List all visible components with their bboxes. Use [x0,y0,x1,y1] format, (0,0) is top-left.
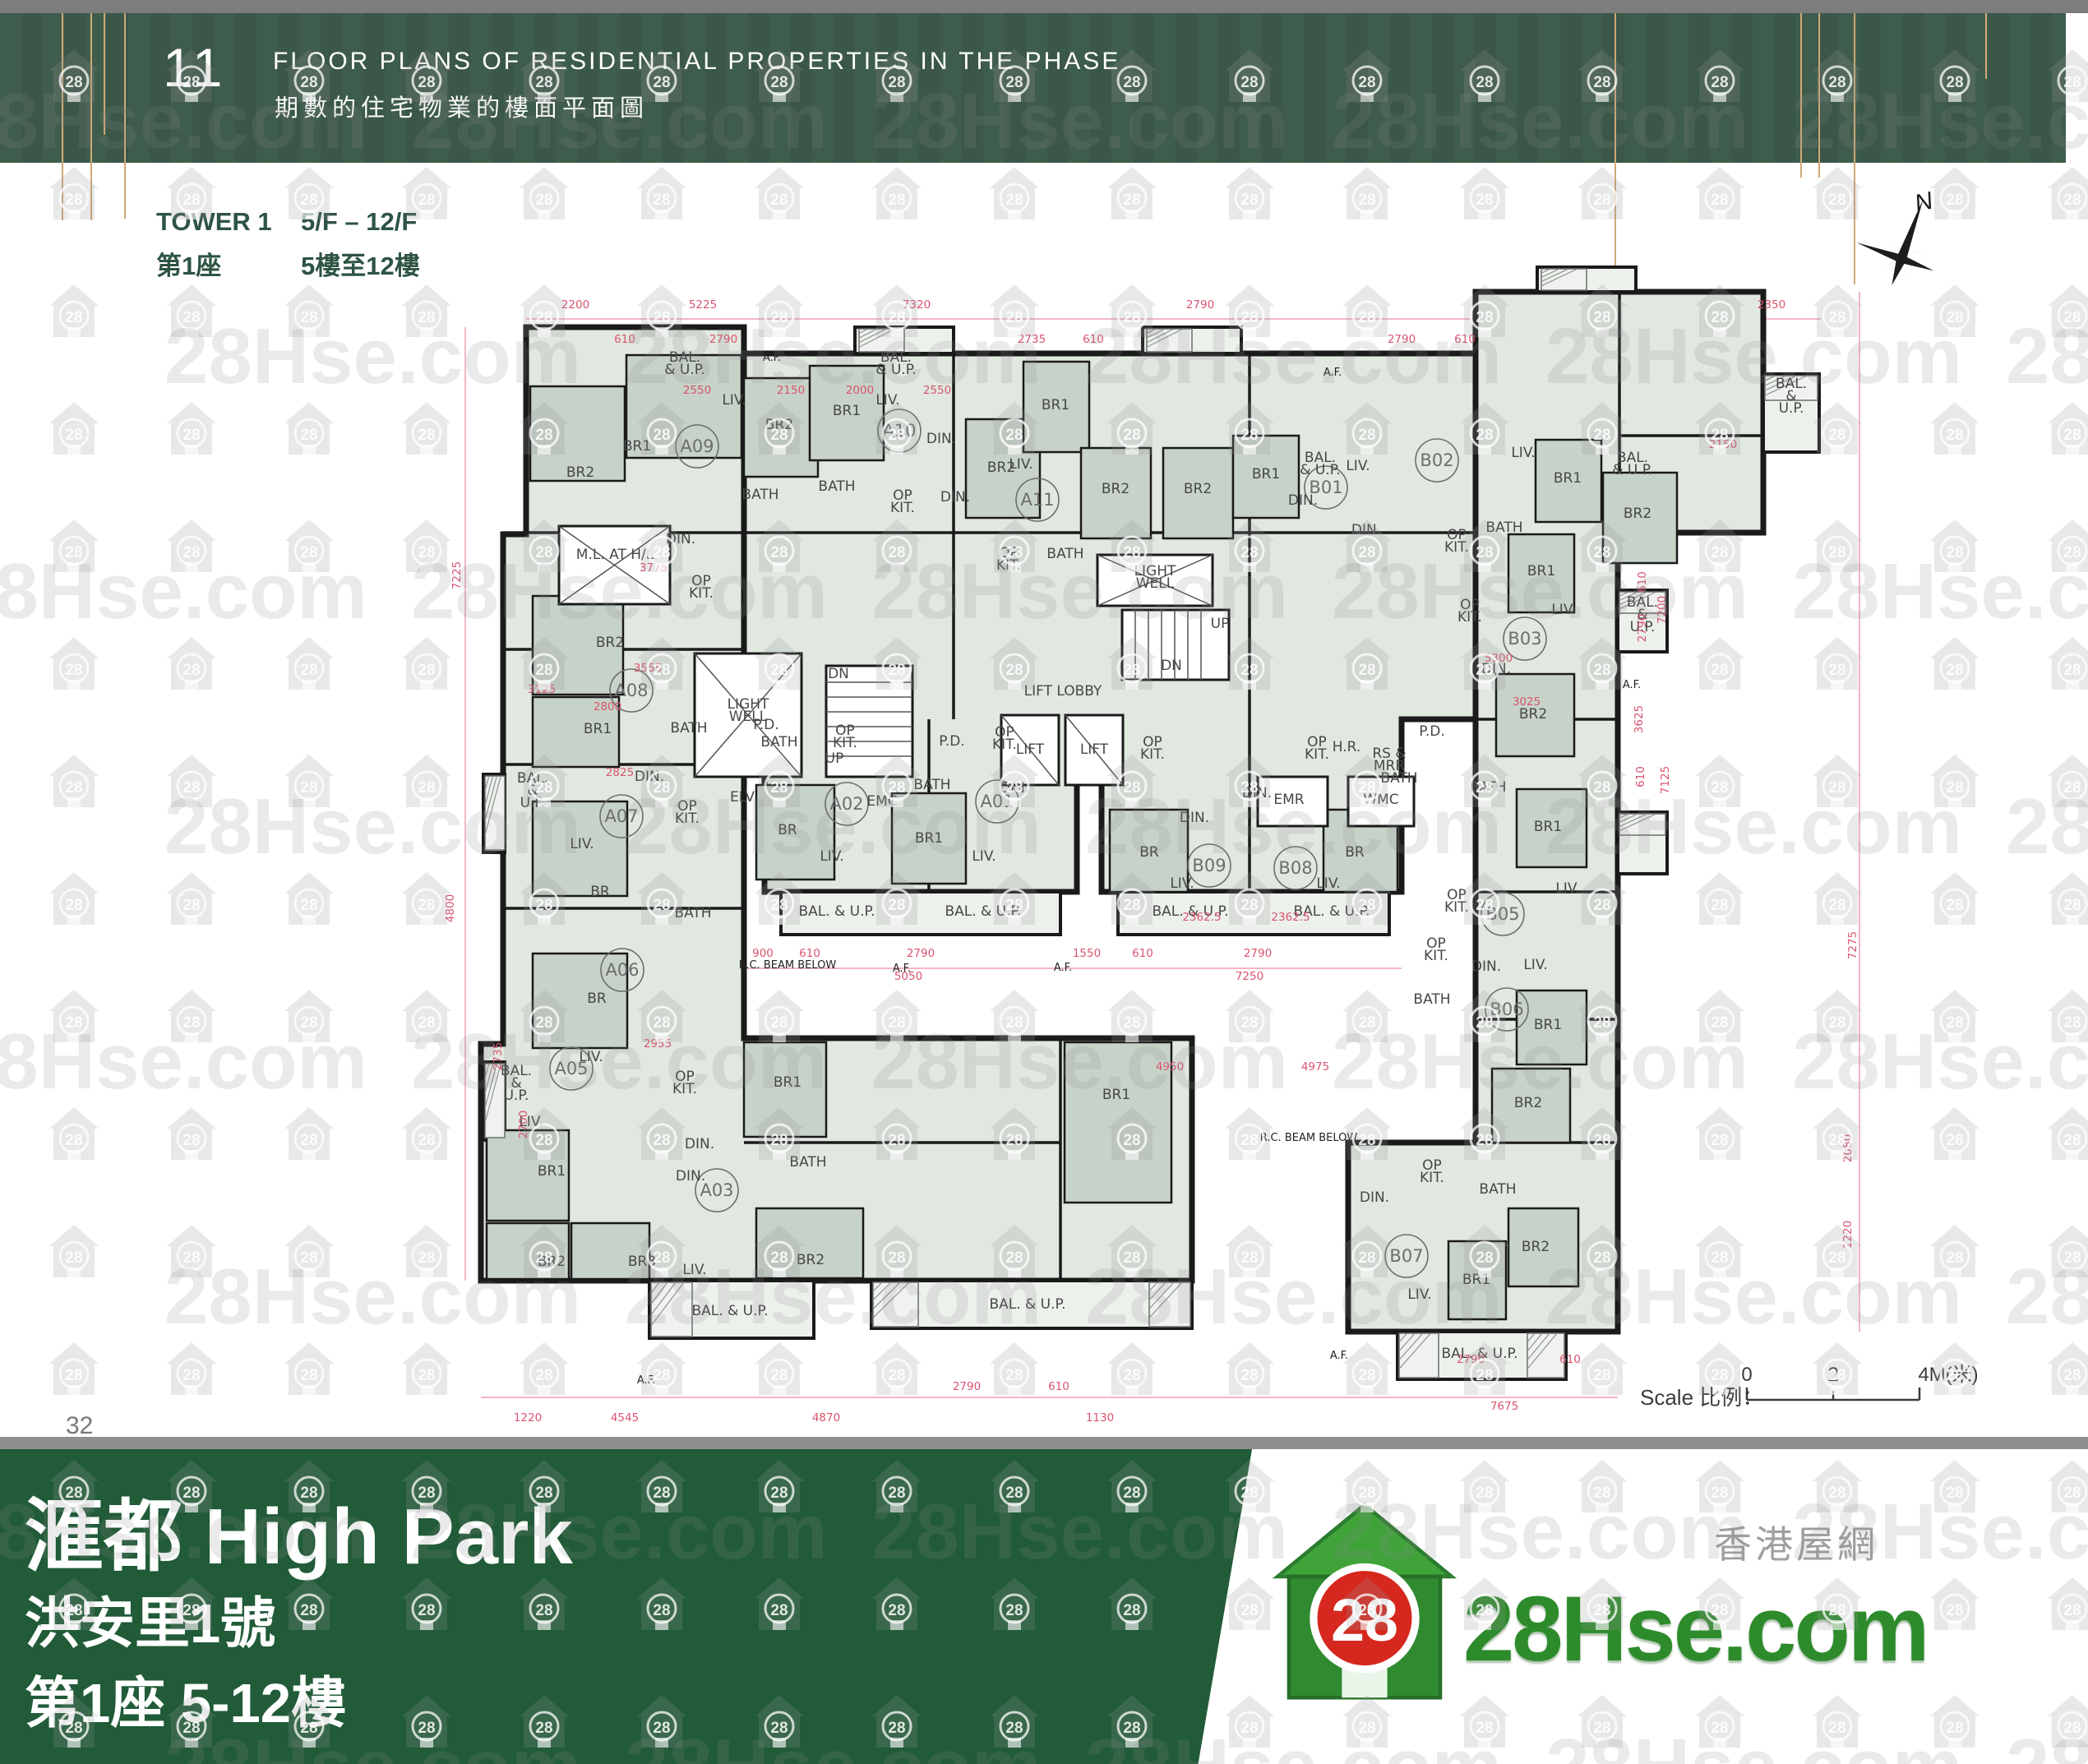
room-label: BR2 [1102,481,1129,497]
unit-label-B06: B06 [1490,1000,1523,1019]
room-label: BATH [789,1154,826,1171]
dimension-label: 610 [1454,333,1476,346]
dimension-label: 2700 [517,1111,530,1138]
room-label: BR2 [538,1254,566,1270]
scale-tick-0: 0 [1741,1364,1752,1386]
logo-house-icon: 28 [1270,1500,1459,1710]
room-label: BATH [670,720,707,737]
room-label: BR [587,991,607,1007]
room-label: ELV [730,789,755,806]
dimension-label: 2735 [492,1042,505,1070]
room-label: OPKIT. [1140,734,1165,763]
room-label: BR [590,884,610,900]
dimension-label: 4950 [1156,1060,1184,1074]
room-label: LIV. [722,392,746,409]
dimension-label: 3775 [640,561,668,575]
unit-label-A02: A02 [829,794,863,814]
room-label: OPKIT. [1424,935,1448,964]
dimension-label: 2800 [594,700,621,713]
annotation: R.C. BEAM BELOW [1260,1132,1358,1144]
dimension-label: 2790 [953,1380,981,1393]
room-label: EMR [1273,792,1304,808]
room-label: BR1 [833,403,861,419]
site-logo[interactable]: 28 香港屋網 28Hse.com [1270,1500,2010,1739]
room-label: OPKIT. [1444,887,1469,916]
room-label: BR [778,822,797,838]
room-label: LIV. [1555,880,1579,897]
dimension-label: 610 [1636,571,1649,593]
unit-label-B09: B09 [1192,856,1226,875]
dimension-label: 610 [1559,1353,1581,1366]
room-label: LIV. [1407,1286,1431,1303]
room-label: UP [825,750,844,767]
dimension-label: 2200 [561,298,589,312]
room-label: OPKIT. [675,798,700,827]
room-label: UP [1211,616,1230,632]
room-label: BAL.& U.P. [1612,450,1653,478]
dimension-label: 1130 [1086,1411,1114,1425]
room-label: LIGHTWELL [1134,563,1176,592]
unit-label-B02: B02 [1420,450,1453,470]
dimension-label: 900 [752,947,774,960]
room-label: DN [828,666,849,682]
dimension-label: 2550 [923,384,951,397]
dimension-label: 2790 [709,333,737,346]
annotation: A.F. [637,1374,655,1387]
dimension-label: 2362.5 [1182,911,1221,924]
dimension-label: 2790 [1244,947,1272,960]
dimension-label: 7250 [1236,970,1263,983]
room-label: DIN. [1242,785,1272,801]
room-label: RS &MRR [1372,746,1406,774]
logo-brand: 28Hse.com [1463,1576,1927,1682]
dimension-label: 5300 [1485,652,1513,665]
room-label: EMC [866,793,897,810]
dimension-label: 3555 [634,662,662,675]
footer-banner: 滙都 High Park 洪安里1號 第1座 5-12樓 [0,1449,1252,1764]
room-label: DIN. [676,1168,705,1184]
unit-label-B03: B03 [1508,629,1541,649]
unit-label-A07: A07 [604,806,638,826]
room-label: P.D. [753,717,779,733]
unit-label-A09: A09 [680,436,714,456]
room-label: DIN. [940,489,970,506]
room-label: LIV. [682,1262,706,1278]
room-label: BAL.& U.P. [664,349,705,378]
room-label: OPKIT. [689,573,714,602]
dimension-label: 610 [1083,333,1104,346]
room-label: LIV. [579,1049,603,1065]
scale-tick-2: 2 [1827,1364,1838,1386]
room-label: WMC [1363,792,1398,808]
dimension-label: 4975 [1301,1060,1329,1074]
room-label: LIV. [972,848,995,865]
room-label: BATH [818,478,855,495]
scale-tick-4: 4M(米) [1918,1364,1978,1386]
dimension-label: 610 [1048,1380,1069,1393]
compass-n-label: N [1912,189,1936,218]
room-label: M.L. AT H/L [576,547,654,563]
room-label: OPKIT. [890,487,915,516]
room-label: BATH [1469,779,1506,796]
room-label: LIFT [1080,741,1109,758]
room-label: DIN. [666,531,695,547]
annotation: A.F. [1054,962,1072,974]
dimension-label: 2362.5 [1271,911,1310,924]
room-label: DIN. [926,431,956,447]
dimension-label: 4545 [611,1411,639,1425]
room-label: BATH [913,777,950,793]
dimension-label: 5225 [689,298,717,312]
room-label: LIV. [1523,957,1547,973]
room-label: LIV. [1009,456,1032,473]
room-label: DIN. [1360,1189,1389,1206]
room-label: BR2 [1624,506,1651,522]
room-label: BR1 [1554,470,1582,487]
room-label: OPKIT. [1305,734,1329,763]
room-label: BR1 [915,830,943,847]
room-label: BR2 [596,635,624,651]
room-label: BR1 [623,438,651,455]
room-label: BR3 [628,1254,656,1270]
dimension-label: 2550 [683,384,711,397]
room-label: BR1 [1534,1017,1562,1033]
room-label: DIN. [1351,522,1381,538]
room-label: BR1 [774,1074,801,1091]
room-label: BR2 [1519,706,1547,723]
dimension-label: 7225 [450,561,464,589]
room-label: LIV. [875,392,899,409]
room-label: LIV. [1511,445,1535,461]
dimension-label: 2350 [1758,298,1785,312]
room-label: H.R. [1333,739,1361,755]
development-name: 滙都 High Park [25,1472,573,1586]
room-label: BR1 [1462,1272,1490,1288]
room-label: OPKIT. [996,545,1021,574]
room-label: BR1 [538,1163,566,1180]
dimension-label: 1220 [1841,1221,1855,1249]
dimension-label: 7200 [1656,596,1669,624]
room-label: BR2 [566,464,594,481]
dimension-label: 2955 [644,1037,672,1051]
dimension-label: 7675 [1490,1400,1518,1413]
room-label: BR2 [1514,1095,1542,1111]
dimension-label: 7125 [1659,766,1672,794]
room-label: BR1 [1527,563,1555,580]
room-label: DIN. [1471,958,1501,975]
annotation: A.F. [763,352,781,364]
dimension-label: 3625 [1633,705,1646,733]
dimension-label: 3025 [1513,695,1541,709]
room-label: BR1 [1534,819,1562,835]
annotation: R.C. BEAM BELOW [739,959,837,972]
room-label: LIFT LOBBY [1024,683,1102,700]
dimension-label: 1550 [1073,947,1101,960]
room-label: P.D. [1419,723,1445,740]
room-label: LIV. [1551,602,1575,618]
room-label: BR1 [1252,466,1280,483]
dimension-label: 610 [799,947,820,960]
room-label: BR2 [797,1252,825,1268]
room-label: BAL. & U.P. [989,1296,1065,1313]
dimension-label: 2790 [1636,614,1649,642]
room-label: BR2 [1522,1239,1550,1255]
room-label: BATH [1046,546,1083,562]
dimension-label: 2790 [1186,298,1214,312]
dimension-label: 610 [1634,766,1647,787]
annotation: A.F. [1330,1350,1348,1362]
dimension-label: 7320 [903,298,931,312]
room-label: BAL.& U.P. [875,349,917,378]
dimension-label: 2790 [907,947,935,960]
room-label: DIN. [1000,780,1029,797]
annotation: A.F. [893,963,911,975]
page-number: 32 [66,1412,93,1440]
dimension-label: 4800 [444,894,457,922]
room-label: LIFT [1016,741,1045,758]
development-block: 第1座 5-12樓 [25,1659,346,1739]
room-label: BAL. & U.P. [798,903,875,920]
room-label: LIV. [820,848,843,865]
room-label: BR1 [584,721,612,737]
room-label: DIN. [1180,810,1209,826]
unit-label-B07: B07 [1389,1246,1423,1266]
room-label: LIV. [1346,458,1370,474]
dimension-label: 3125 [528,683,556,696]
dimension-label: 610 [614,333,635,346]
room-label: BR2 [765,417,793,433]
dimension-label: 2000 [846,384,874,397]
dimension-label: 2825 [606,766,634,779]
room-label: OPKIT. [833,723,857,751]
annotation: A.F. [1623,679,1641,691]
room-label: BR [1139,844,1159,861]
room-label: P.D. [939,733,965,750]
page-root: 11 FLOOR PLANS OF RESIDENTIAL PROPERTIES… [0,0,2088,1764]
room-label: BAL.& U.P. [1300,450,1341,478]
room-label: OPKIT. [992,724,1017,753]
unit-label-A06: A06 [605,960,639,980]
dimension-label: 2790 [1457,1353,1485,1366]
development-address: 洪安里1號 [25,1579,275,1659]
unit-label-A10: A10 [882,421,916,441]
room-label: BR1 [1102,1087,1130,1103]
room-label: DN [1161,658,1182,674]
logo-badge: 28 [1331,1586,1398,1654]
dimension-label: 2735 [1018,333,1046,346]
dimension-label: 2790 [1388,333,1416,346]
room-label: BR [1345,844,1365,861]
room-label: BATH [674,905,711,921]
room-label: BATH [1413,991,1450,1008]
dimension-label: 2080 [1841,1134,1855,1162]
dimension-label: 7275 [1846,931,1859,959]
room-label: LIV. [570,836,594,852]
room-label: DIN. [635,769,664,785]
room-label: BR1 [1042,397,1069,413]
room-label: OPKIT. [1444,527,1469,556]
room-label: BR2 [1184,481,1212,497]
logo-tagline: 香港屋網 [1714,1515,1878,1569]
room-label: OPKIT. [1420,1157,1444,1186]
annotation: A.F. [1323,367,1342,379]
unit-label-B05: B05 [1485,904,1519,924]
room-label: OPKIT. [672,1069,697,1097]
room-label: BAL. & U.P. [945,903,1021,920]
room-label: DIN. [1288,492,1318,509]
footer-divider [0,1437,2088,1449]
room-label: LIV. [1316,875,1340,892]
room-label: LIV. [1170,875,1194,892]
dimension-label: 2150 [777,384,805,397]
room-label: BATH [1485,520,1522,536]
room-label: OPKIT. [1457,597,1482,626]
dimension-label: 1220 [514,1411,542,1425]
unit-label-A11: A11 [1020,490,1054,510]
room-label: BATH [741,487,778,503]
unit-label-A08: A08 [614,681,648,700]
room-label: BAL. & U.P. [691,1303,768,1319]
dimension-label: 4870 [812,1411,840,1425]
unit-label-B08: B08 [1278,858,1312,878]
room-label: BATH [760,734,797,750]
compass: N [1841,189,1965,325]
dimension-label: 2150 [1709,438,1737,451]
room-label: DIN. [685,1136,714,1152]
room-label: BATH [1479,1181,1516,1198]
dimension-label: 610 [1132,947,1153,960]
